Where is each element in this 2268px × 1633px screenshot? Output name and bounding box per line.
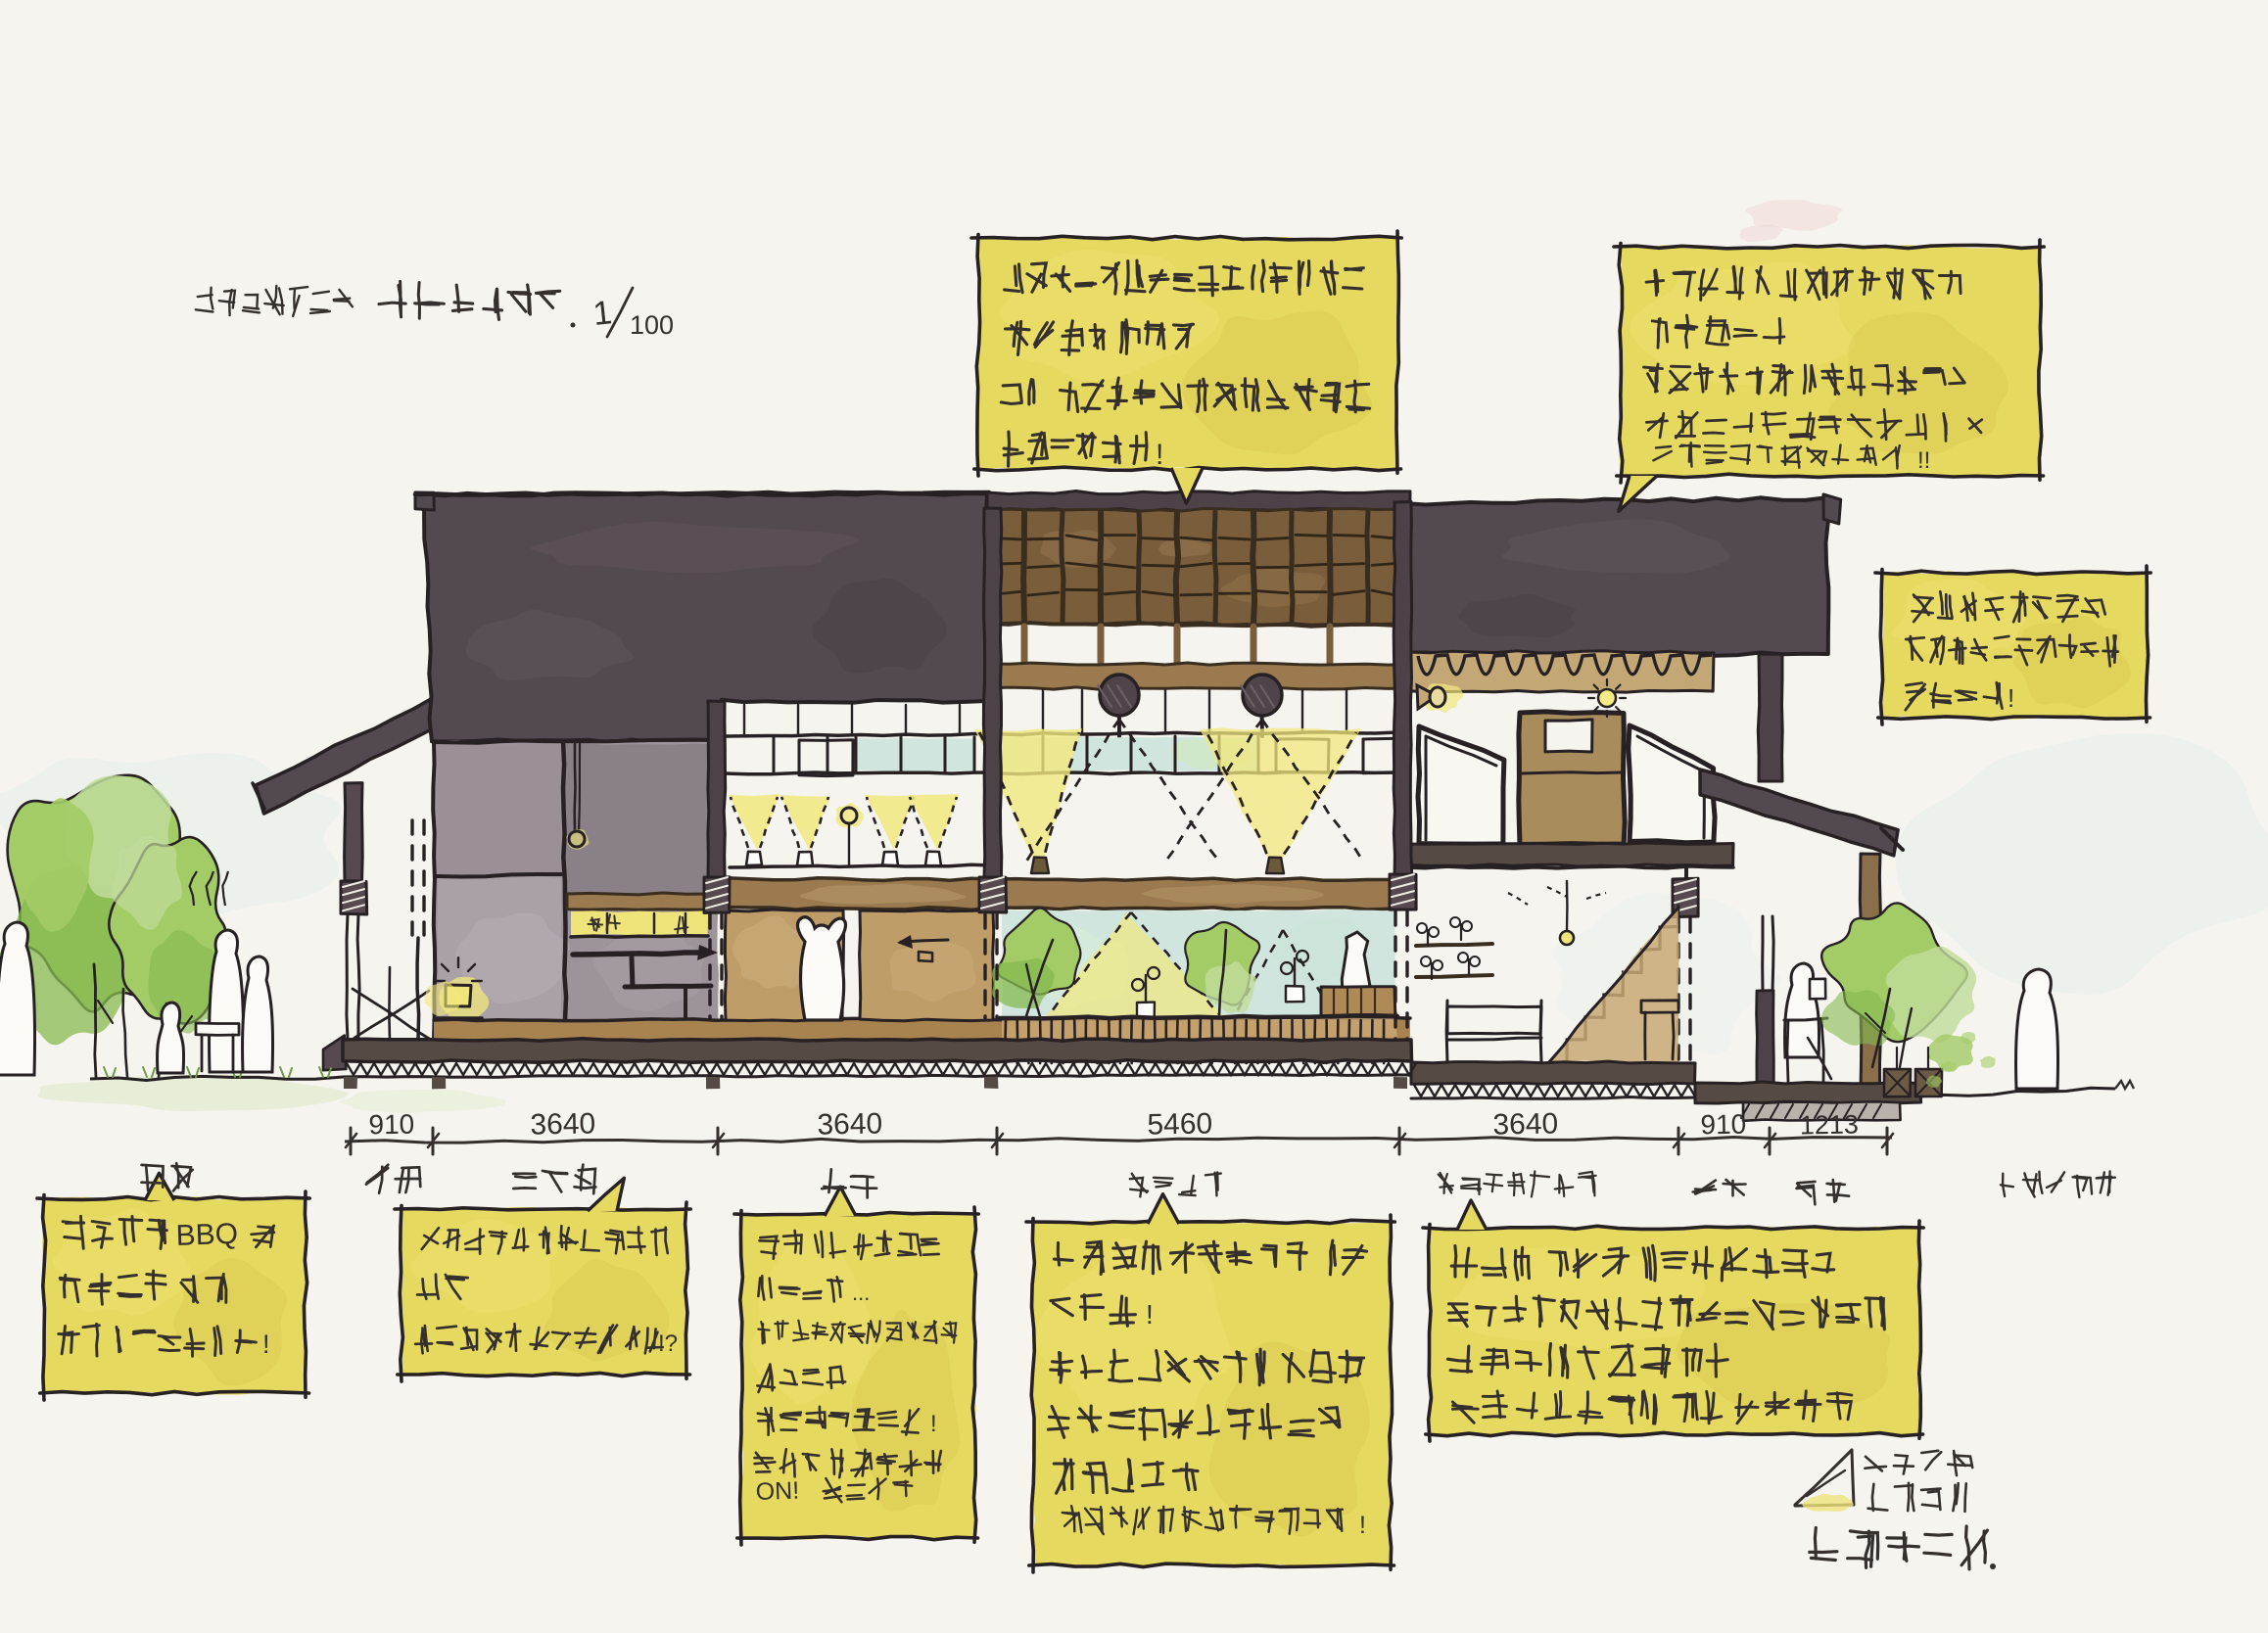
svg-text:5460: 5460	[1147, 1107, 1212, 1141]
svg-text:!!: !!	[1917, 447, 1930, 474]
svg-text:3640: 3640	[817, 1107, 882, 1141]
svg-text:100: 100	[630, 310, 674, 340]
svg-text:!: !	[1146, 1299, 1154, 1330]
svg-text:1213: 1213	[1800, 1109, 1860, 1140]
svg-text:3640: 3640	[1492, 1107, 1558, 1141]
svg-text:ON!: ON!	[755, 1476, 799, 1506]
svg-text:1: 1	[591, 294, 614, 333]
svg-text:!: !	[2008, 683, 2014, 713]
svg-text:!: !	[262, 1330, 270, 1359]
svg-text:3640: 3640	[530, 1107, 595, 1141]
svg-text:!?: !?	[658, 1330, 678, 1357]
svg-text:!: !	[1156, 439, 1163, 471]
svg-text:...: ...	[852, 1281, 870, 1305]
svg-text:!: !	[930, 1411, 937, 1437]
svg-text:!: !	[1359, 1512, 1366, 1539]
svg-text:910: 910	[368, 1109, 414, 1141]
svg-text:910: 910	[1700, 1109, 1746, 1141]
svg-text:BBQ: BBQ	[175, 1218, 238, 1252]
